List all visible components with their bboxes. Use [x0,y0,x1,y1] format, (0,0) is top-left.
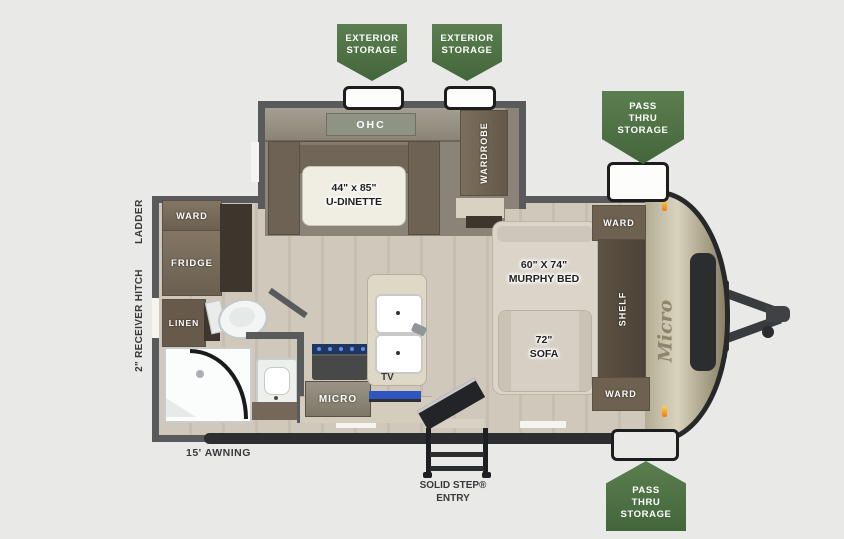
label-murphy-bed: 60" X 74" MURPHY BED [509,259,579,286]
label-murphy-bed-wrap: 60" X 74" MURPHY BED [492,250,596,296]
dinette-bench-left [268,141,300,235]
window-slide-left [251,142,259,182]
cabinet-ward-front-bottom: WARD [592,377,650,411]
sink-drain-2 [396,351,400,355]
badge-pass-thru-storage-top-label: PASS THRU STORAGE [602,101,684,137]
bed-cushion [497,226,593,242]
hatch-pass-thru-bottom [611,429,679,461]
cabinet-ward-rear: WARD [162,200,222,232]
stove-knob-2 [328,347,332,351]
bath-sink-drain [274,396,278,400]
dinette-table: 44" x 85" U-DINETTE [302,166,406,226]
hatch-exterior-storage-1 [343,86,404,110]
fridge-label: FRIDGE [171,258,213,269]
stove-knob-5 [361,347,365,351]
microwave-label: MICRO [319,394,357,405]
fridge: FRIDGE [162,230,222,296]
label-entry: SOLID STEP® ENTRY [398,480,508,505]
badge-pass-thru-storage-top: PASS THRU STORAGE [602,91,684,164]
shelf-label: SHELF [617,292,627,327]
label-sofa-wrap: 72" SOFA [510,322,578,374]
badge-exterior-storage-2: EXTERIOR STORAGE [432,24,502,81]
awning-bar [204,433,622,444]
badge-exterior-storage-1: EXTERIOR STORAGE [337,24,407,81]
window-rear [152,298,159,338]
hatch-exterior-storage-2 [444,86,496,110]
badge-pass-thru-storage-bottom-label: PASS THRU STORAGE [606,485,686,521]
badge-pass-thru-storage-bottom: PASS THRU STORAGE [606,461,686,531]
label-u-dinette: 44" x 85" U-DINETTE [326,182,382,209]
hitch-coupler [766,306,790,322]
dinette-bench-right [408,141,440,235]
stove-body [312,354,368,380]
ward-front-top-label: WARD [603,218,635,228]
ward-front-bottom-label: WARD [605,389,637,399]
sink-drain-1 [396,311,400,315]
sink-bowl-2 [375,334,423,374]
tv-base [369,399,421,402]
kitchen-island [367,274,427,386]
window-bottom-2 [520,421,566,428]
marker-light-bottom [662,406,667,417]
floorplan-canvas: Micro EXTERIOR STORAGE EXTERIOR STORAGE … [0,0,844,539]
bath-sink-basin [264,367,290,395]
ohc-label: OHC [356,119,385,131]
tv-unit [369,391,421,399]
label-receiver-hitch: 2" RECEIVER HITCH [126,250,152,390]
step-foot-left [423,472,432,478]
bath-sink [256,358,298,406]
label-tv: TV [381,372,394,383]
stove-knob-4 [350,347,354,351]
wardrobe-base [456,198,504,218]
sofa-arm-right [579,311,591,391]
label-awning: 15' AWNING [186,447,251,459]
badge-exterior-storage-1-label: EXTERIOR STORAGE [337,33,407,57]
wardrobe-slide: WARDROBE [460,110,508,196]
step-rung-2 [430,452,484,457]
wardrobe-label: WARDROBE [479,122,489,184]
hitch-jack-wheel [762,326,774,338]
brand-logo-text: Micro [654,300,676,363]
cabinet-ward-front-top: WARD [592,205,646,241]
ohc-plate: OHC [326,113,416,136]
label-ladder: LADDER [126,190,152,252]
stove-knob-1 [317,347,321,351]
hatch-pass-thru-top [607,162,669,202]
step-foot-right [482,472,491,478]
badge-exterior-storage-2-label: EXTERIOR STORAGE [432,33,502,57]
fridge-side-panel [220,204,252,292]
shower-drain [196,370,204,378]
label-sofa: 72" SOFA [530,334,559,361]
step-rung-3 [430,466,484,471]
microwave: MICRO [305,381,371,417]
cabinet-ward-rear-label: WARD [176,211,208,221]
shelf-column: SHELF [598,239,646,379]
rock-guard-window [690,253,716,371]
cabinet-linen: LINEN [162,299,206,347]
cabinet-linen-label: LINEN [169,318,200,328]
brand-logo: Micro [648,272,682,390]
bath-vanity [252,402,298,420]
stove-knob-3 [339,347,343,351]
step-rung-1 [430,438,484,443]
entry-steps [426,428,488,478]
stove [312,344,368,380]
bath-wall-horizontal [246,332,304,339]
